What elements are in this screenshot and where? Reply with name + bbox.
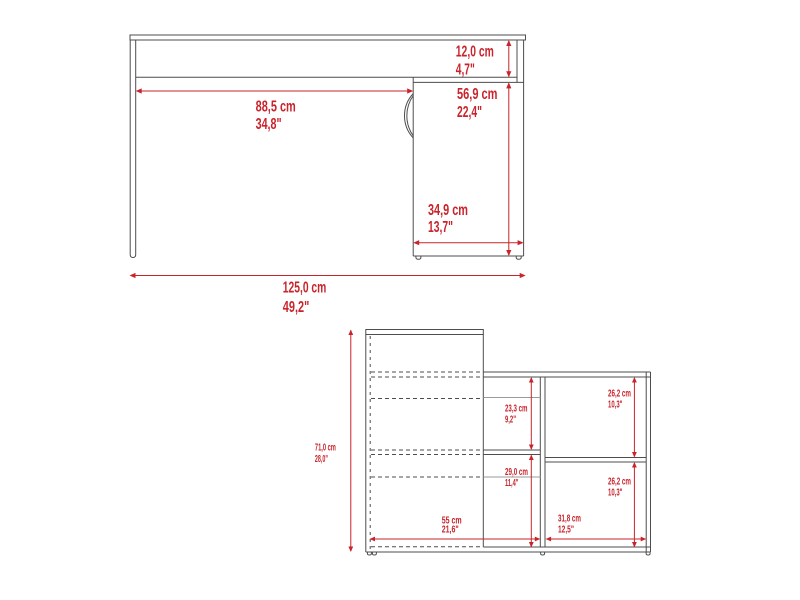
svg-text:49,2": 49,2" — [283, 299, 310, 316]
svg-text:12,5": 12,5" — [558, 525, 574, 536]
svg-text:56,9 cm: 56,9 cm — [457, 86, 498, 103]
svg-text:4,7": 4,7" — [456, 62, 475, 79]
svg-text:26,2 cm: 26,2 cm — [608, 388, 631, 399]
svg-text:11,4": 11,4" — [505, 478, 519, 489]
svg-text:26,2 cm: 26,2 cm — [608, 476, 631, 487]
svg-text:28,0": 28,0" — [315, 454, 328, 465]
svg-text:13,7": 13,7" — [428, 219, 453, 236]
svg-text:22,4": 22,4" — [457, 104, 482, 121]
svg-text:125,0 cm: 125,0 cm — [283, 279, 327, 296]
svg-text:12,0 cm: 12,0 cm — [456, 44, 494, 61]
svg-text:71,0 cm: 71,0 cm — [315, 443, 336, 454]
svg-text:9,2": 9,2" — [505, 415, 516, 426]
svg-text:34,9 cm: 34,9 cm — [428, 202, 468, 219]
svg-text:10,3": 10,3" — [608, 400, 623, 411]
svg-text:23,3 cm: 23,3 cm — [505, 404, 528, 415]
svg-text:29,0 cm: 29,0 cm — [505, 467, 528, 478]
svg-text:88,5 cm: 88,5 cm — [256, 98, 296, 115]
svg-text:34,8": 34,8" — [256, 116, 282, 133]
svg-text:10,3": 10,3" — [608, 488, 623, 499]
svg-text:21,6": 21,6" — [442, 525, 459, 536]
svg-text:31,8 cm: 31,8 cm — [558, 514, 581, 525]
